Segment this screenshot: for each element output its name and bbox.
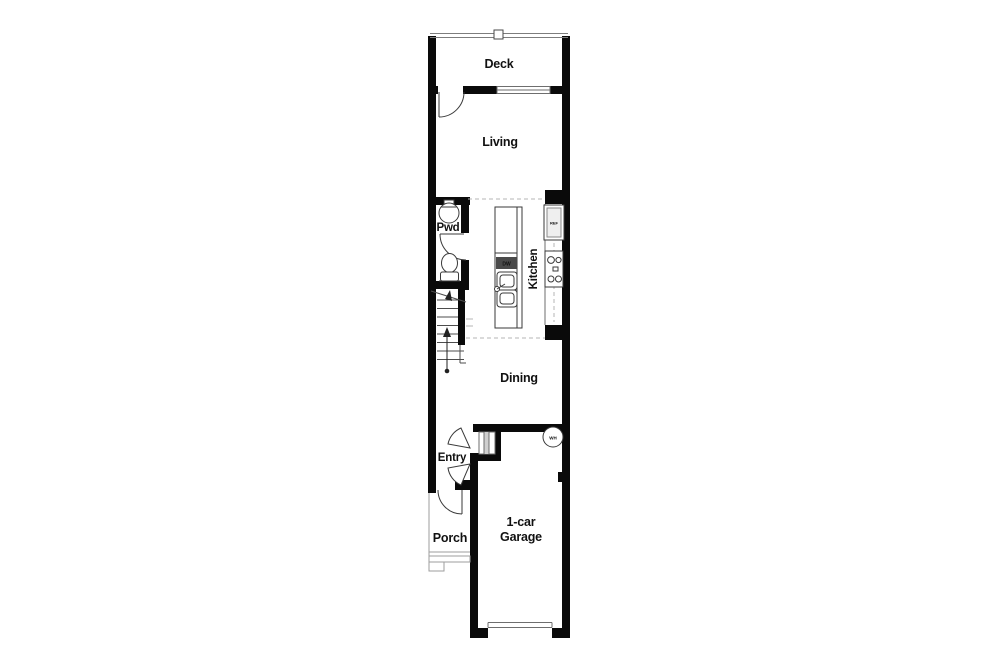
room-label-dining: Dining (500, 371, 538, 385)
entry-upper-door-icon (448, 428, 470, 448)
room-label-living: Living (482, 135, 518, 149)
water-heater-label: WH (549, 436, 557, 441)
room-label-kitchen: Kitchen (528, 248, 540, 289)
refrigerator-icon: REF (544, 205, 564, 240)
dishwasher-icon: DW (496, 257, 517, 269)
dishwasher-label: DW (502, 262, 511, 268)
front-door-icon (438, 490, 462, 514)
porch-steps-icon (429, 556, 470, 571)
room-label-porch: Porch (433, 531, 467, 545)
range-icon (545, 251, 563, 287)
room-label-pwd: Pwd (436, 222, 459, 234)
refrigerator-label: REF (550, 221, 559, 226)
room-label-deck: Deck (484, 57, 513, 71)
floor-plan-canvas: DW REF (0, 0, 1000, 667)
porch-outline (429, 493, 470, 556)
room-label-garage-line1: 1-car (507, 515, 536, 529)
entry-steps-icon (479, 432, 495, 454)
living-window-icon (497, 87, 550, 94)
room-label-garage-line2: Garage (500, 530, 542, 544)
stairs-up-arrow-icon (443, 290, 452, 373)
room-label-entry: Entry (438, 452, 467, 464)
deck-door-icon (439, 92, 464, 117)
deck-railing-icon (430, 30, 568, 39)
double-sink-icon (495, 272, 518, 307)
water-heater-icon: WH (543, 427, 563, 447)
stair-dash-marks (466, 319, 473, 326)
toilet-icon (439, 254, 460, 282)
floor-plan-drawing: DW REF (0, 0, 1000, 667)
garage-door-icon (488, 623, 552, 628)
